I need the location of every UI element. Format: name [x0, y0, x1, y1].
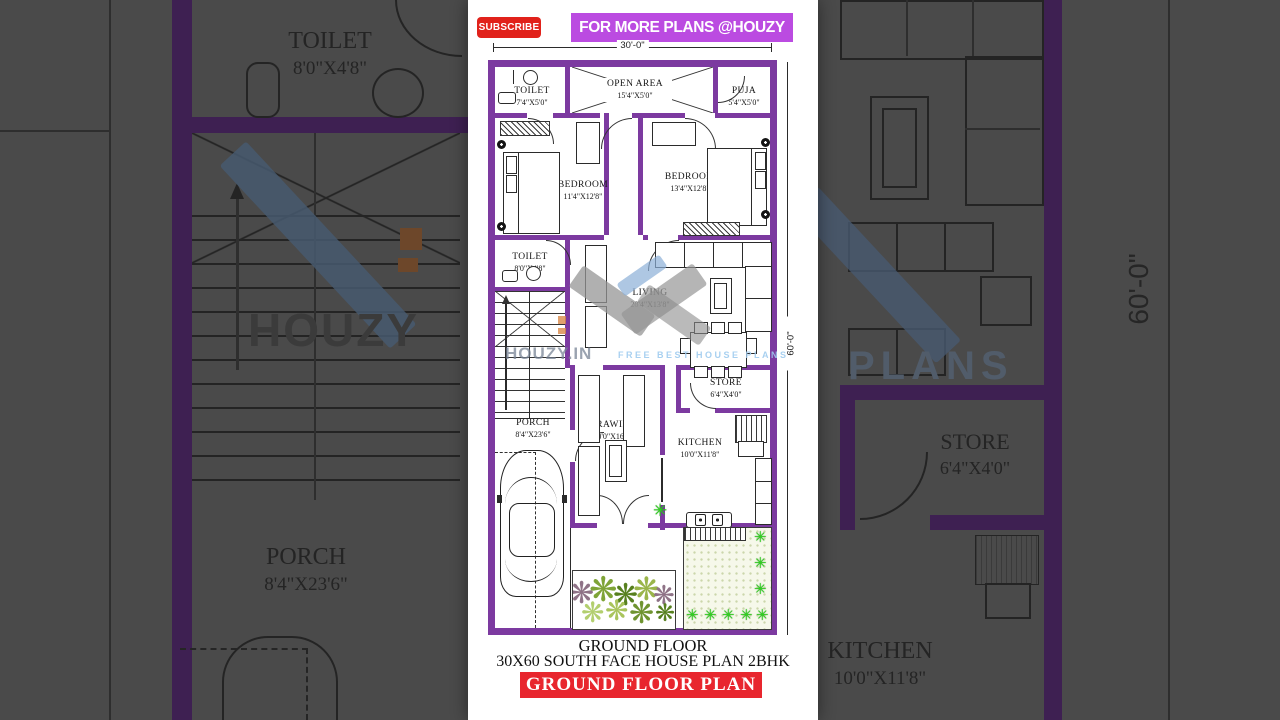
wall-segment [495, 113, 527, 118]
subscribe-button[interactable]: SUBSCRIBE [477, 17, 541, 38]
footer-subtitle: 30X60 SOUTH FACE HOUSE PLAN 2BHK [468, 653, 818, 671]
sofa-icon [578, 446, 600, 516]
dimension-tick [771, 43, 772, 52]
lamp-icon [761, 138, 770, 147]
room-label-bedroom-left: BEDROOM 11'4"X12'8" [552, 180, 614, 202]
chair-icon [728, 322, 742, 334]
dimension-label: 60'-0" [786, 317, 797, 371]
room-label-porch: PORCH 8'4"X23'6" [502, 418, 564, 440]
stairs-arrow-icon [236, 195, 239, 370]
dimension-top: 30'-0" [493, 41, 772, 54]
burner-icon [712, 514, 723, 526]
wall-segment [172, 0, 192, 720]
lamp-icon [761, 210, 770, 219]
logo-pixel-icon [398, 258, 418, 272]
dimension-label: 30'-0" [616, 40, 648, 51]
plan-line [742, 243, 743, 267]
tap-icon [513, 70, 514, 84]
room-name: OPEN AREA [600, 79, 670, 91]
room-size: 6'4"X4'0" [696, 390, 756, 400]
bg-dimension-label: 60'-0" [1123, 234, 1157, 344]
room-name: PUJA [718, 86, 770, 98]
bed-icon [503, 152, 560, 234]
room-label-puja: PUJA 5'4"X5'0" [718, 86, 770, 108]
steps-icon [684, 527, 746, 541]
fridge-icon [738, 441, 764, 457]
logo-pixel-icon [558, 316, 566, 324]
wall-segment [643, 235, 648, 240]
sofa-icon [745, 266, 772, 332]
fridge-icon [975, 535, 1039, 585]
wall-segment [676, 365, 681, 413]
sofa-icon [840, 0, 1044, 60]
wardrobe-icon [500, 121, 550, 136]
logo-pixel-icon [400, 228, 422, 250]
room-size: 8'4"X23'6" [502, 430, 564, 440]
wall-segment [570, 368, 575, 430]
room-name: STORE [696, 378, 756, 390]
chair-icon [944, 222, 994, 272]
wc-icon [372, 68, 424, 118]
sofa-icon [965, 56, 1044, 206]
wall-segment [565, 67, 570, 113]
room-size: 5'4"X5'0" [718, 98, 770, 108]
mirror-icon [605, 440, 627, 482]
room-name: PORCH [502, 418, 564, 430]
pillow-icon [506, 156, 517, 174]
burner-icon [695, 514, 706, 526]
bg-watermark-right: PLANS [848, 344, 1014, 389]
bg-watermark-left: HOUZY [248, 303, 419, 357]
wall-segment [570, 523, 597, 528]
plant-icon: ✳ [653, 502, 667, 519]
bg-room-label-porch: PORCH 8'4"X23'6" [216, 542, 396, 598]
wall-segment [676, 408, 690, 413]
door-arc-icon [860, 452, 928, 520]
counter-icon [755, 458, 772, 525]
shower-icon [523, 70, 538, 85]
plan-line [906, 0, 908, 56]
lamp-icon [497, 140, 506, 149]
plan-line [684, 243, 685, 267]
video-frame: TOILET 8'0"X4'8" HOUZY PORCH 8'4"X23'6" [0, 0, 1280, 720]
chair-icon [896, 222, 946, 272]
bush-icon: ❋ [655, 601, 675, 625]
plan-line [751, 149, 752, 225]
chair-icon [694, 366, 708, 378]
pillow-icon [755, 171, 766, 189]
bush-icon: ❋ [581, 599, 604, 627]
sofa-icon [585, 306, 607, 348]
hedge-plant-icon: ✳ [754, 530, 767, 545]
door-arc-icon [597, 495, 623, 524]
room-size: 15'4"X5'0" [600, 91, 670, 101]
watermark-tagline: FREE BEST HOUSE PLANS [618, 350, 789, 360]
wall-segment [553, 113, 600, 118]
wall-segment [488, 60, 777, 67]
wall-segment [488, 60, 495, 635]
plan-line [746, 298, 771, 299]
plan-line [756, 503, 771, 504]
car-windshield [505, 477, 557, 504]
room-name: TOILET [504, 252, 556, 264]
sofa-icon [655, 242, 772, 268]
car-icon [500, 450, 564, 597]
chair-icon [711, 322, 725, 334]
room-size: 10'0"X11'8" [800, 667, 960, 692]
wc-icon [526, 266, 541, 281]
wardrobe-icon [683, 222, 740, 236]
tv-icon [714, 283, 727, 309]
hedge-plant-icon: ✳ [686, 608, 699, 623]
car-mirror [562, 495, 567, 503]
room-size: 8'4"X23'6" [216, 573, 396, 598]
room-label-store: STORE 6'4"X4'0" [696, 378, 756, 400]
plan-line [570, 528, 571, 628]
room-size: 11'4"X12'8" [552, 192, 614, 202]
wall-segment [840, 400, 855, 530]
fridge-icon [985, 583, 1031, 619]
room-label-kitchen: KITCHEN 10'0"X11'8" [668, 438, 732, 460]
geyser-icon [246, 62, 280, 118]
sink-icon [502, 270, 518, 282]
sink-icon [498, 92, 516, 104]
sofa-icon [578, 375, 600, 443]
plan-line [109, 0, 111, 720]
car-rear-window [505, 559, 557, 582]
pillow-icon [506, 175, 517, 193]
tv-icon [710, 278, 732, 314]
room-name: KITCHEN [800, 636, 960, 667]
plan-line [972, 0, 974, 56]
room-label-open-area: OPEN AREA 15'4"X5'0" [598, 78, 672, 102]
door-arc-icon [623, 495, 649, 524]
dresser-icon [652, 122, 696, 146]
bg-room-label-kitchen: KITCHEN 10'0"X11'8" [800, 636, 960, 692]
logo-pixel-icon [558, 328, 566, 334]
plan-line [495, 418, 565, 419]
bed-icon [707, 148, 767, 226]
wall-segment [840, 385, 1062, 400]
wall-segment [930, 515, 1062, 530]
sliding-door-icon [661, 458, 663, 502]
room-name: PORCH [216, 542, 396, 573]
wall-segment [715, 113, 777, 118]
plan-line [756, 481, 771, 482]
mirror-icon [882, 108, 917, 188]
car-roof [509, 503, 555, 557]
dimension-line [1168, 0, 1170, 720]
lamp-icon [497, 222, 506, 231]
chair-icon [728, 366, 742, 378]
sofa-icon [623, 375, 645, 447]
car-icon [222, 636, 338, 720]
chair-icon [980, 276, 1032, 326]
footer-banner: GROUND FLOOR PLAN [520, 672, 762, 698]
room-name: KITCHEN [668, 438, 732, 450]
wall-segment [660, 365, 665, 455]
flower-bed: ❋ ❋ ❋ ❋ ❋ ❋ ❋ ❋ ❋ [572, 570, 676, 630]
stairs-arrow-icon [502, 295, 510, 304]
fridge-icon [735, 415, 767, 443]
wall-segment [638, 113, 643, 235]
plan-line [965, 128, 1040, 130]
wall-segment [715, 408, 777, 413]
stove-icon [686, 512, 732, 528]
wall-segment [603, 365, 665, 370]
bush-icon: ❋ [629, 599, 654, 629]
hedge-plant-icon: ✳ [722, 608, 735, 623]
wall-segment [192, 117, 468, 133]
watermark-brand: HOUZY.IN [505, 344, 592, 364]
video-content: SUBSCRIBE FOR MORE PLANS @HOUZY 30'-0" 6… [468, 0, 818, 720]
car-mirror [497, 495, 502, 503]
pillow-icon [755, 152, 766, 170]
plan-line [0, 130, 110, 132]
room-size: 10'0"X11'8" [668, 450, 732, 460]
dresser-icon [576, 122, 600, 164]
plan-line [518, 153, 519, 233]
wall-segment [570, 462, 575, 523]
plan-line [713, 243, 714, 267]
room-name: BEDROOM [552, 180, 614, 192]
hedge-plant-icon: ✳ [740, 608, 753, 623]
channel-banner: FOR MORE PLANS @HOUZY [571, 13, 793, 42]
hedge-plant-icon: ✳ [754, 582, 767, 597]
mirror-icon [609, 445, 622, 477]
room-name: TOILET [250, 26, 410, 57]
hedge-plant-icon: ✳ [704, 608, 717, 623]
dimension-tick [493, 43, 494, 52]
chair-icon [711, 366, 725, 378]
hedge-plant-icon: ✳ [756, 608, 769, 623]
bush-icon: ❋ [605, 597, 628, 625]
hedge-plant-icon: ✳ [754, 556, 767, 571]
wall-segment [1044, 0, 1062, 720]
